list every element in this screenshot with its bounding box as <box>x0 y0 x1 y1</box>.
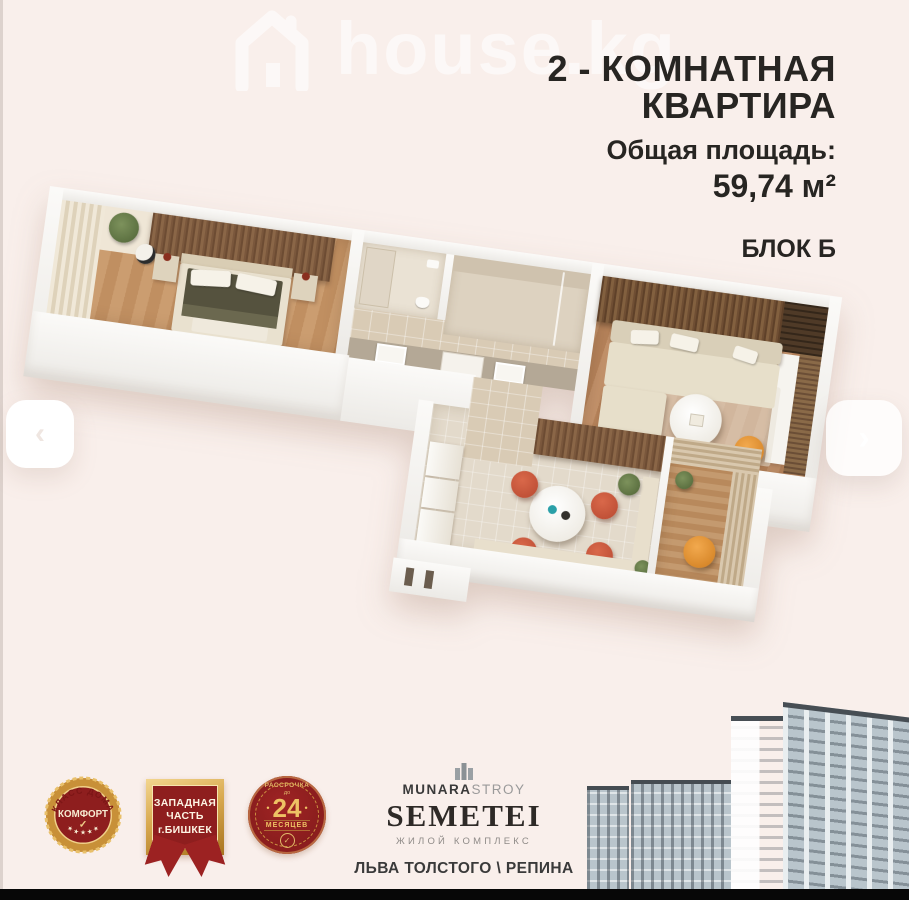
block-label: БЛОК Б <box>547 235 836 264</box>
header: 2 - КОМНАТНАЯ КВАРТИРА Общая площадь: 59… <box>547 50 836 264</box>
developer-logo: MUNARASTROY SEMETEI ЖИЛОЙ КОМПЛЕКС ЛЬВА … <box>348 762 580 878</box>
corridor <box>462 377 543 468</box>
page-title: 2 - КОМНАТНАЯ КВАРТИРА <box>547 50 836 125</box>
location-line: ЧАСТЬ <box>166 810 203 824</box>
complex-name: SEMETEI <box>348 798 580 834</box>
kitchen-cabinet <box>421 477 459 511</box>
comfort-class-badge: КЛАСС ДОМА КОМФОРТ ✓ ★ ★ ★ ★ ★ <box>44 776 122 854</box>
screen-edge-line <box>0 0 3 900</box>
location-line: г.БИШКЕК <box>158 824 212 838</box>
dashed-ring <box>255 783 319 847</box>
brand-name: MUNARASTROY <box>348 782 580 797</box>
pillow <box>190 269 231 287</box>
kitchen-cabinet <box>416 509 454 545</box>
chevron-left-icon: ‹ <box>35 417 45 451</box>
carousel-prev-button[interactable]: ‹ <box>6 400 74 468</box>
complex-type: ЖИЛОЙ КОМПЛЕКС <box>348 836 580 847</box>
bottom-black-bar <box>0 889 909 900</box>
pillow <box>631 330 659 345</box>
building-render <box>577 698 909 889</box>
building-tower-tall <box>731 716 783 894</box>
address: ЛЬВА ТОЛСТОГО \ РЕПИНА <box>348 860 580 878</box>
promo-card: house.kg 2 - КОМНАТНАЯ КВАРТИРА Общая пл… <box>0 0 909 900</box>
kitchen-cabinet <box>425 441 463 479</box>
building-icon <box>348 762 580 780</box>
location-badge: ЗАПАДНАЯ ЧАСТЬ г.БИШКЕК <box>146 779 224 855</box>
area-label: Общая площадь: <box>547 135 836 166</box>
badge-main-text: КОМФОРТ <box>58 809 108 820</box>
carousel-next-button[interactable]: › <box>826 400 902 476</box>
installment-badge: РАССРОЧКА до • 24 • МЕСЯЦЕВ ✓ <box>248 776 326 854</box>
building-wing <box>783 702 909 900</box>
location-line: ЗАПАДНАЯ <box>154 797 216 811</box>
tv-wall <box>778 301 829 357</box>
building-tower <box>587 786 629 893</box>
sink <box>426 259 439 269</box>
area-value: 59,74 м² <box>547 168 836 205</box>
building-slab <box>631 780 731 893</box>
tray <box>689 413 705 427</box>
house-icon <box>228 7 324 91</box>
chevron-right-icon: › <box>858 419 869 458</box>
